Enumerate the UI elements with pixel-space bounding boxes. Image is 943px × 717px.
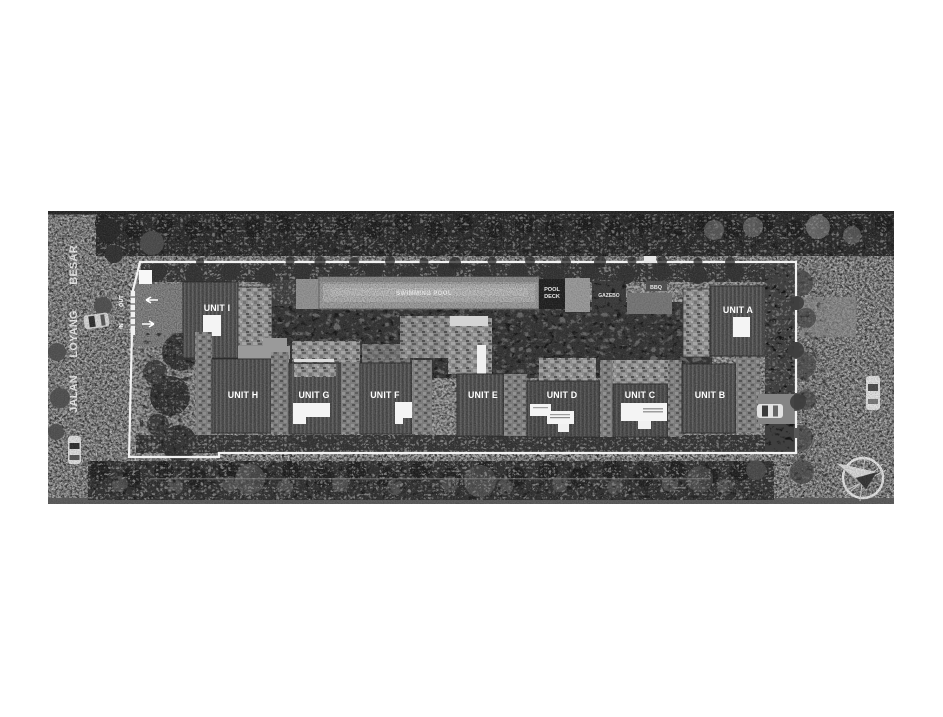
svg-text:UNIT I: UNIT I	[204, 303, 231, 313]
svg-text:UNIT E: UNIT E	[468, 390, 498, 400]
svg-text:UNIT A: UNIT A	[723, 305, 754, 315]
svg-text:UNIT F: UNIT F	[370, 390, 400, 400]
svg-text:UNIT H: UNIT H	[228, 390, 259, 400]
svg-text:IN: IN	[119, 323, 125, 329]
svg-text:OUT: OUT	[119, 295, 125, 307]
svg-text:UNIT B: UNIT B	[695, 390, 726, 400]
svg-text:UNIT G: UNIT G	[298, 390, 329, 400]
svg-text:UNIT D: UNIT D	[547, 390, 578, 400]
svg-text:UNIT C: UNIT C	[625, 390, 656, 400]
